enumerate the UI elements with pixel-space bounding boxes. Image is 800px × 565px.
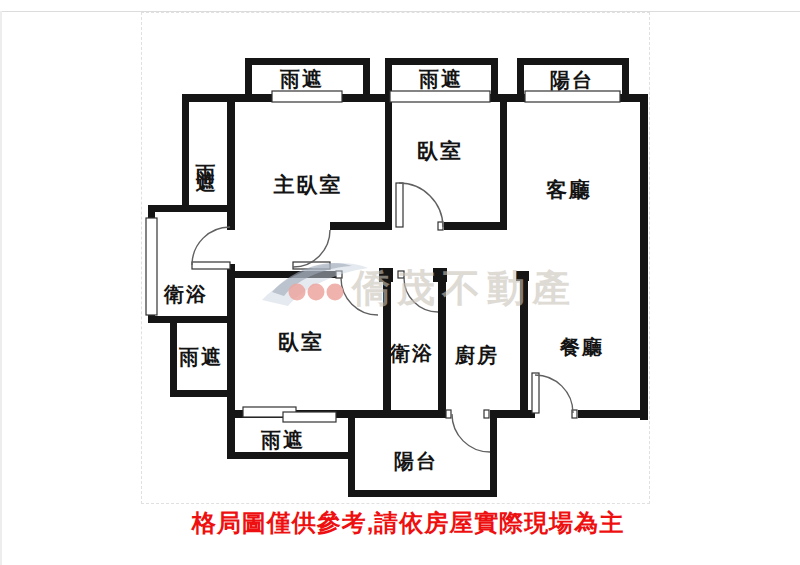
- door-arc: [452, 414, 490, 452]
- room-label-bathroom-center: 衛浴: [390, 343, 434, 363]
- door-jamb: [446, 410, 451, 418]
- room-label-living-room: 客廳: [546, 179, 592, 200]
- door-arc: [192, 227, 230, 265]
- logo-dot: [327, 284, 344, 301]
- wall: [245, 58, 370, 65]
- room-label-dining-room: 餐廳: [560, 337, 604, 357]
- wall: [444, 222, 507, 230]
- door-leaf: [532, 373, 539, 413]
- room-label-bedroom-center: 臥室: [278, 331, 324, 352]
- wall: [578, 410, 648, 418]
- wall: [182, 94, 189, 212]
- window: [390, 91, 490, 102]
- wall: [170, 316, 177, 397]
- wall: [148, 205, 235, 212]
- room-label-balcony-bottom: 陽台: [394, 451, 438, 471]
- wall: [385, 58, 498, 65]
- wall: [491, 58, 498, 98]
- room-label-kitchen: 廚房: [455, 345, 499, 365]
- wall: [500, 94, 507, 230]
- wall: [227, 452, 355, 459]
- logo-dot: [289, 284, 306, 301]
- room-label-canopy-top-left: 雨遮: [280, 69, 324, 89]
- room-label-canopy-left-upper: 雨遮: [196, 149, 216, 161]
- wall: [490, 418, 497, 497]
- window: [525, 91, 620, 102]
- wall: [363, 58, 370, 98]
- wall: [517, 58, 524, 98]
- wall: [348, 490, 497, 497]
- window: [283, 412, 336, 422]
- watermark-text: 僑茂不動產: [352, 269, 577, 307]
- room-label-canopy-bottom: 雨遮: [261, 430, 305, 450]
- room-label-canopy-left-lower: 雨遮: [179, 347, 223, 367]
- wall: [640, 94, 648, 420]
- door-jamb: [484, 410, 489, 418]
- room-label-canopy-top-mid: 雨遮: [419, 69, 463, 89]
- room-label-bedroom-top: 臥室: [417, 140, 463, 161]
- door-arc: [399, 183, 443, 227]
- wall: [245, 58, 252, 98]
- wall: [490, 410, 535, 418]
- wall: [330, 222, 392, 230]
- wall: [170, 390, 235, 397]
- window: [272, 91, 342, 102]
- wall: [385, 94, 392, 230]
- room-label-balcony-top: 陽台: [550, 70, 594, 90]
- room-label-bathroom-left: 衛浴: [164, 284, 208, 304]
- wall: [517, 58, 629, 65]
- wall: [622, 58, 629, 98]
- disclaimer-text: 格局圖僅供參考,請依房屋實際現場為主: [192, 507, 625, 539]
- window: [146, 218, 157, 315]
- door-leaf: [192, 262, 230, 269]
- floorplan-page: 雨遮 雨遮 陽台 雨遮 主臥室 臥室 客廳 衛浴 雨遮 臥室 衛浴 廚房 餐廳 …: [0, 0, 800, 565]
- room-label-master-bedroom: 主臥室: [274, 174, 343, 195]
- door-leaf: [396, 183, 403, 227]
- logo-dot: [308, 284, 325, 301]
- wall: [148, 316, 235, 323]
- door-arc: [535, 375, 573, 413]
